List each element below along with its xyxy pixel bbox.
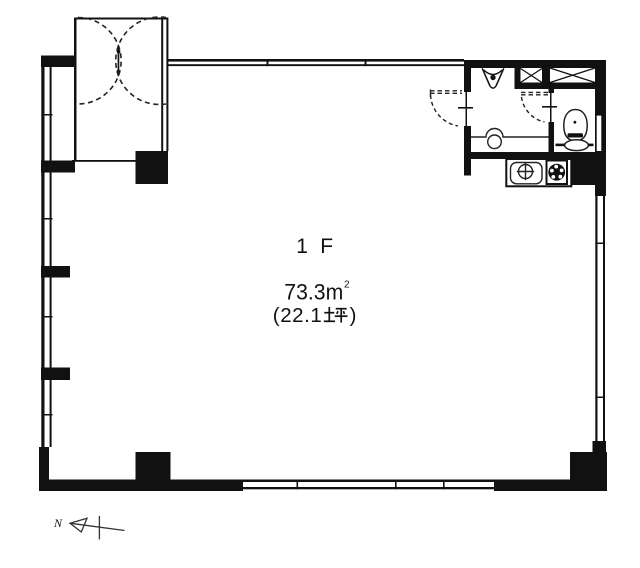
svg-text:2: 2 [344,280,350,291]
svg-text:1: 1 [296,235,308,258]
svg-text:(22.1: (22.1 [273,304,322,327]
svg-text:): ) [350,304,357,327]
svg-text:73.3m: 73.3m [284,280,343,305]
svg-text:F: F [320,235,333,258]
svg-text:N: N [53,516,63,530]
